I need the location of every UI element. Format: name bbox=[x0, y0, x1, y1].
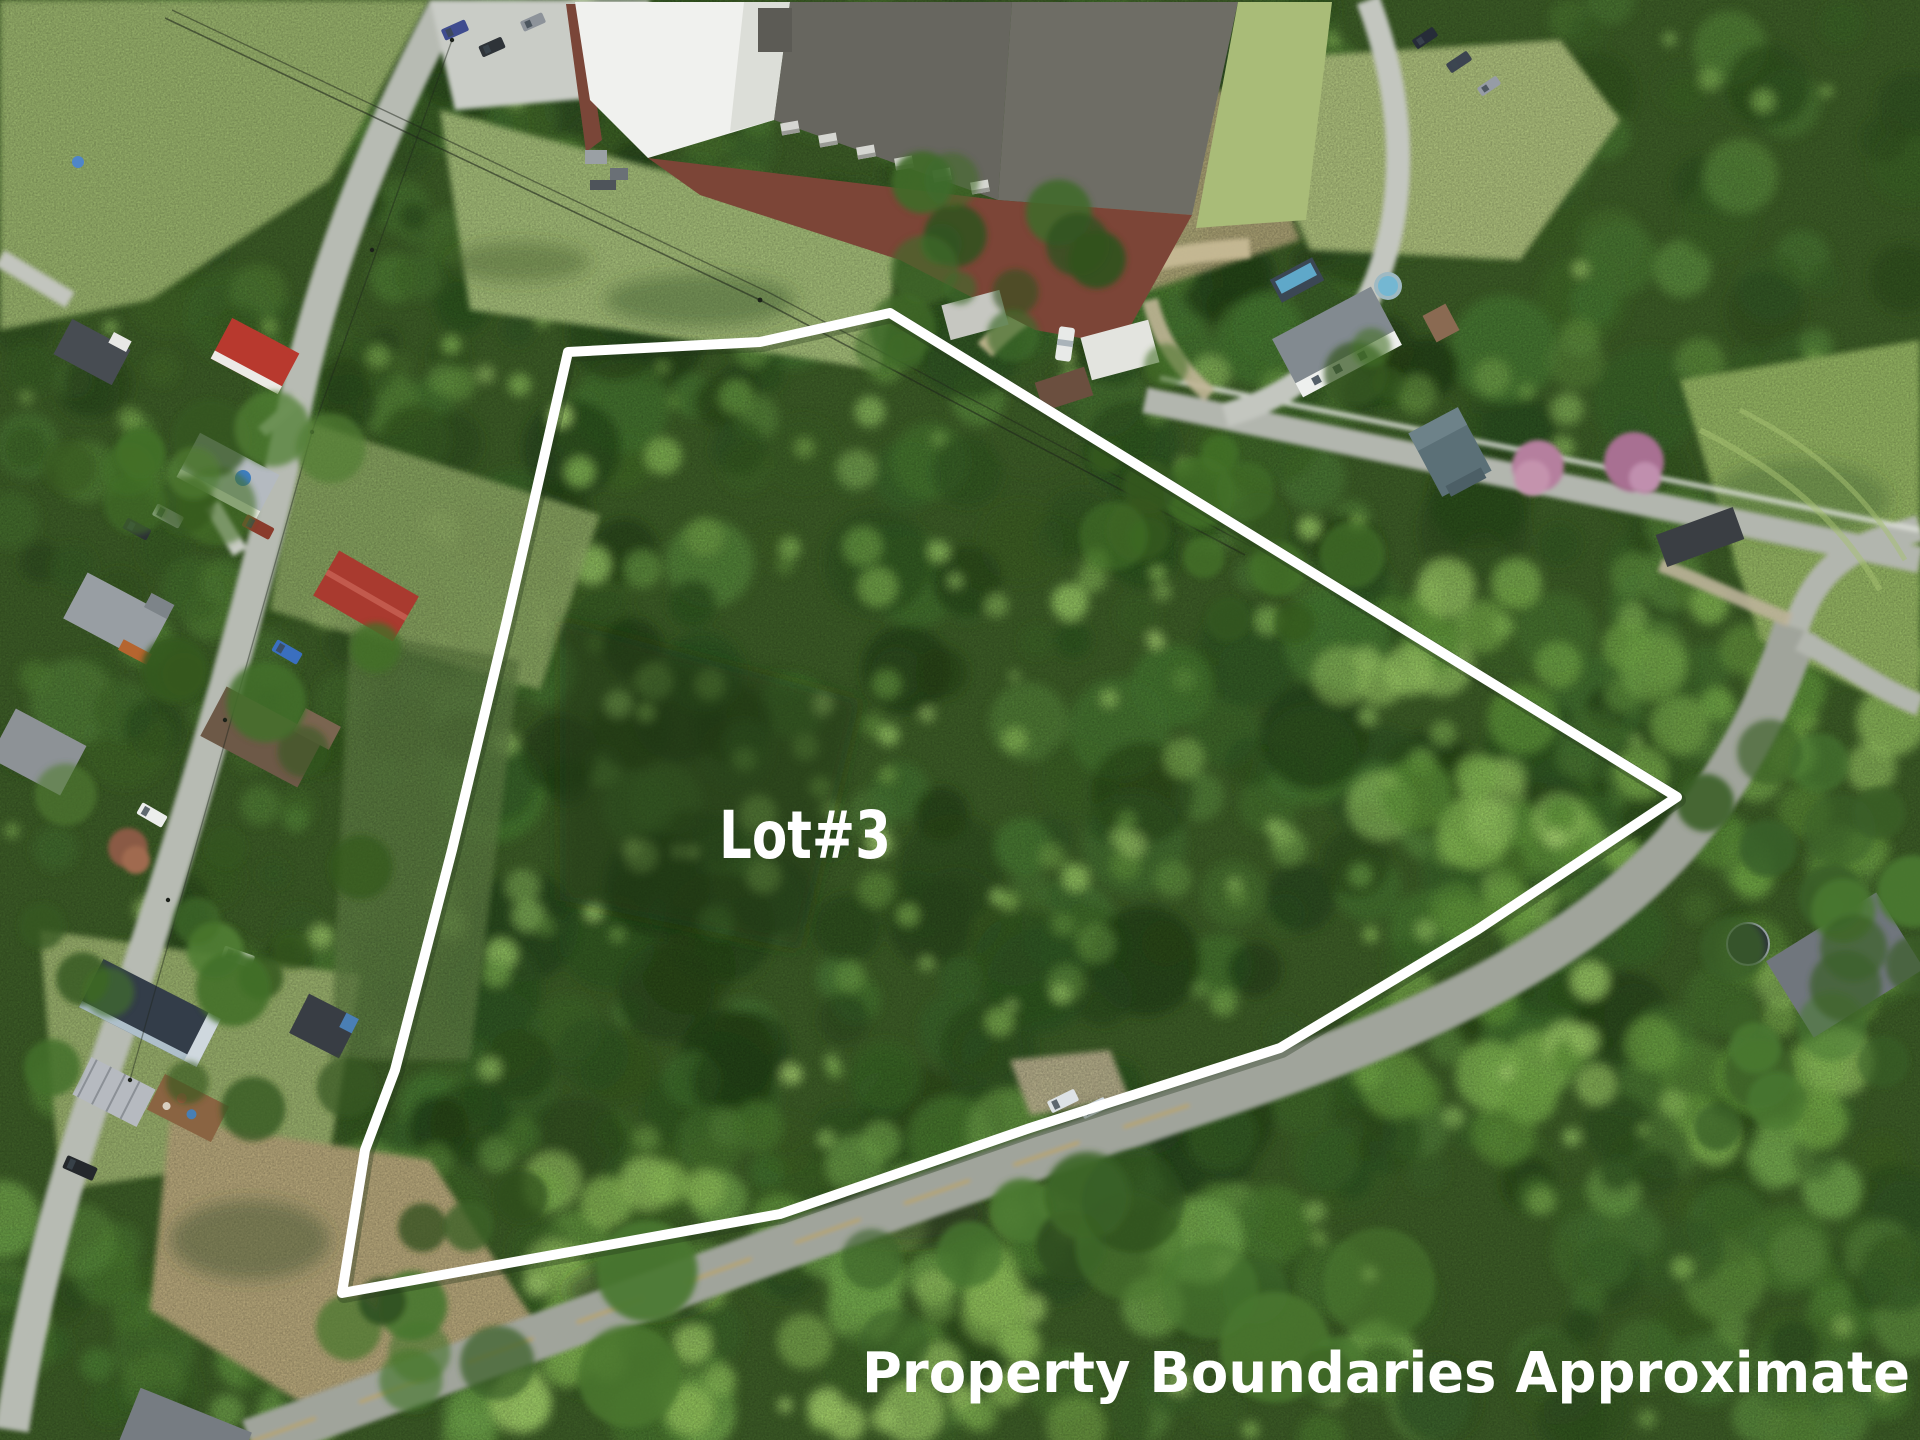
lot-label: Lot#3 bbox=[719, 797, 891, 874]
disclaimer-label: Property Boundaries Approximate bbox=[862, 1341, 1910, 1406]
aerial-photo: Lot#3 Property Boundaries Approximate bbox=[0, 0, 1920, 1440]
aerial-photo-stage: Lot#3 Property Boundaries Approximate bbox=[0, 0, 1920, 1440]
kiddie-pool-1 bbox=[72, 156, 84, 168]
factory-penthouse bbox=[758, 8, 792, 52]
